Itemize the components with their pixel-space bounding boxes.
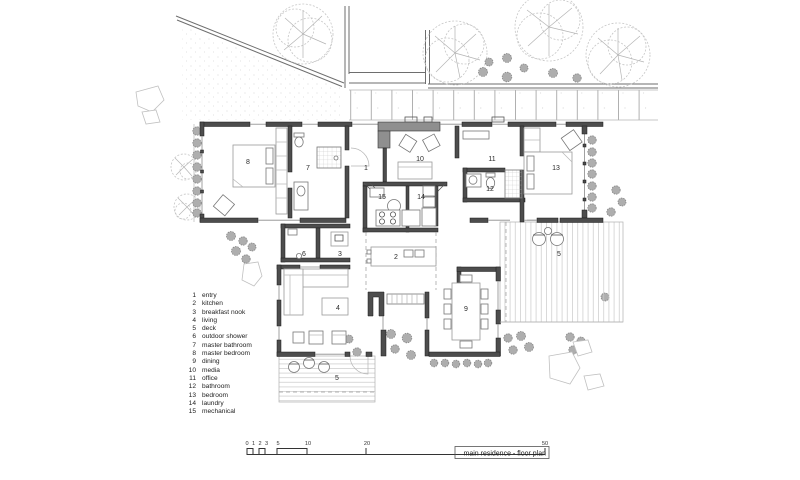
- legend-label: deck: [202, 325, 216, 333]
- room-label-master-bathroom: 7: [306, 165, 310, 172]
- chair: [423, 134, 441, 152]
- legend-label: entry: [202, 292, 217, 300]
- room-label-living: 4: [336, 305, 340, 312]
- room-label-office: 11: [488, 156, 495, 163]
- legend-number: 2: [184, 300, 196, 308]
- concrete-wall: [378, 122, 440, 131]
- title-block: main residence - floor plan: [455, 447, 549, 459]
- legend-label: bedroom: [202, 392, 228, 400]
- toilet: [486, 173, 495, 177]
- legend-item: 2kitchen: [184, 300, 252, 308]
- scale-tick-10: 10: [305, 441, 311, 447]
- legend-number: 3: [184, 309, 196, 317]
- range: [376, 210, 400, 226]
- concrete-wall: [378, 131, 390, 148]
- scale-tick-2: 2: [258, 441, 261, 447]
- room-label-entry: 1: [364, 165, 368, 172]
- entry-door-swing: [351, 148, 369, 166]
- legend-item: 5deck: [184, 325, 252, 333]
- scale-tick-3: 3: [265, 441, 268, 447]
- room-label-outdoor-shower: 6: [302, 251, 306, 258]
- legend-number: 11: [184, 375, 196, 383]
- legend-label: media: [202, 367, 220, 375]
- scale-tick-20: 20: [364, 441, 370, 447]
- counter: [402, 210, 420, 226]
- legend-label: outdoor shower: [202, 333, 247, 341]
- room-label-kitchen: 2: [394, 254, 398, 261]
- room-label-mechanical: 15: [378, 194, 386, 201]
- fridge: [422, 208, 436, 226]
- shower: [505, 170, 522, 198]
- legend-item: 7master bathroom: [184, 342, 252, 350]
- legend-label: dining: [202, 358, 220, 366]
- legend-label: mechanical: [202, 408, 235, 416]
- legend-number: 10: [184, 367, 196, 375]
- sofa: [284, 269, 303, 315]
- legend-number: 12: [184, 383, 196, 391]
- scale-tick-0: 0: [245, 441, 248, 447]
- side-table: [293, 332, 304, 343]
- room-label-dining: 9: [464, 306, 468, 313]
- legend-number: 14: [184, 400, 196, 408]
- legend-item: 13bedroom: [184, 392, 252, 400]
- legend-item: 14laundry: [184, 400, 252, 408]
- sink: [404, 250, 413, 257]
- toilet: [294, 133, 304, 137]
- sofa: [398, 162, 432, 179]
- legend-label: living: [202, 317, 217, 325]
- legend-label: breakfast nook: [202, 309, 245, 317]
- legend-label: bathroom: [202, 383, 230, 391]
- room-label-master-bedroom: 8: [246, 159, 250, 166]
- deck-lower: [279, 356, 375, 402]
- sink: [415, 250, 424, 257]
- legend-number: 6: [184, 333, 196, 341]
- chair: [309, 331, 323, 344]
- legend-item: 8master bedroom: [184, 350, 252, 358]
- room-label-media: 10: [416, 156, 424, 163]
- legend-label: master bathroom: [202, 342, 252, 350]
- legend-number: 5: [184, 325, 196, 333]
- chair: [213, 195, 234, 216]
- legend-item: 4living: [184, 317, 252, 325]
- legend-item: 9dining: [184, 358, 252, 366]
- tree-icon: [273, 4, 333, 64]
- chair: [561, 130, 582, 151]
- drawing-title: main residence - floor plan: [464, 451, 547, 458]
- nook-table: [331, 232, 348, 246]
- coffee-table: [322, 298, 348, 315]
- deck-right: [500, 222, 623, 322]
- tree-icon: [586, 23, 650, 87]
- shelf: [463, 131, 489, 139]
- scale-tick-5: 5: [276, 441, 279, 447]
- kitchen-island: [371, 247, 436, 266]
- chair: [332, 331, 346, 344]
- garden-wall-top: [428, 84, 658, 88]
- room-label-bathroom: 12: [486, 186, 494, 193]
- outdoor-fireplace: [368, 292, 384, 316]
- floor-plan-canvas: 1 2 3 4 5 5 6 7 8 9 10 11 12 13 14 15 0 …: [0, 0, 800, 480]
- room-label-laundry: 14: [417, 194, 425, 201]
- tree-icon: [423, 21, 487, 85]
- legend-number: 9: [184, 358, 196, 366]
- legend-label: office: [202, 375, 218, 383]
- room-label-breakfast-nook: 3: [338, 251, 342, 258]
- legend-number: 1: [184, 292, 196, 300]
- legend-item: 10media: [184, 367, 252, 375]
- chair: [399, 134, 417, 152]
- tree-icon: [515, 0, 583, 61]
- scale-tick-1: 1: [252, 441, 255, 447]
- room-legend: 1entry 2kitchen 3breakfast nook 4living …: [184, 292, 252, 416]
- legend-item: 12bathroom: [184, 383, 252, 391]
- wardrobe: [276, 128, 287, 214]
- legend-item: 15mechanical: [184, 408, 252, 416]
- legend-number: 7: [184, 342, 196, 350]
- legend-label: kitchen: [202, 300, 223, 308]
- legend-number: 4: [184, 317, 196, 325]
- legend-number: 15: [184, 408, 196, 416]
- outdoor-bench: [387, 294, 424, 304]
- legend-item: 11office: [184, 375, 252, 383]
- legend-label: master bedroom: [202, 350, 250, 358]
- paver-walk: [349, 90, 658, 120]
- legend-label: laundry: [202, 400, 224, 408]
- shower-drain: [296, 253, 301, 258]
- legend-number: 8: [184, 350, 196, 358]
- site-ground: [176, 6, 658, 222]
- legend-item: 1entry: [184, 292, 252, 300]
- room-label-deck-right: 5: [557, 251, 561, 258]
- room-label-bedroom: 13: [552, 165, 560, 172]
- legend-item: 3breakfast nook: [184, 309, 252, 317]
- room-label-deck-lower: 5: [335, 375, 339, 382]
- legend-item: 6outdoor shower: [184, 333, 252, 341]
- floor-plan-sheet: 1 2 3 4 5 5 6 7 8 9 10 11 12 13 14 15 0 …: [0, 0, 800, 480]
- legend-number: 13: [184, 392, 196, 400]
